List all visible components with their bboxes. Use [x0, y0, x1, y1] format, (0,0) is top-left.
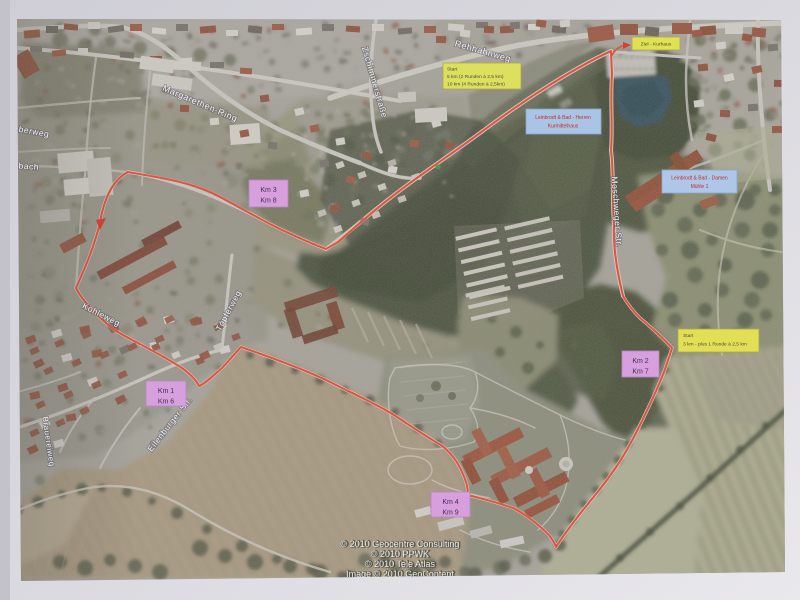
svg-text:10 km (4 Runden à 2,5km): 10 km (4 Runden à 2,5km) [447, 82, 505, 88]
svg-text:Km 8: Km 8 [260, 198, 276, 205]
svg-text:Km 4: Km 4 [442, 499, 458, 506]
svg-text:Km 6: Km 6 [158, 399, 174, 406]
svg-text:Km 9: Km 9 [442, 510, 458, 517]
svg-text:Start: Start [447, 67, 458, 73]
svg-text:Kurmittelhaus: Kurmittelhaus [548, 124, 579, 130]
svg-text:Km 3: Km 3 [260, 187, 276, 194]
svg-text:© 2010 Geocentre Consulting: © 2010 Geocentre Consulting [341, 539, 460, 549]
svg-text:Km 7: Km 7 [632, 369, 648, 376]
svg-text:Km 2: Km 2 [632, 358, 648, 365]
svg-text:© 2010 PPWK: © 2010 PPWK [371, 549, 429, 559]
svg-text:© 2010 Tele Atlas: © 2010 Tele Atlas [365, 559, 436, 569]
svg-text:5 km (2 Runden à 2,5 km): 5 km (2 Runden à 2,5 km) [447, 74, 504, 80]
svg-text:Leinbrodt & Bad - Herren: Leinbrodt & Bad - Herren [535, 115, 591, 121]
svg-text:Leinbrodt & Bad - Damen: Leinbrodt & Bad - Damen [671, 176, 728, 182]
svg-text:Ziel - Kurhaus: Ziel - Kurhaus [641, 42, 672, 48]
svg-text:3 km - plus 1 Runde à 2,5 km: 3 km - plus 1 Runde à 2,5 km [683, 342, 747, 348]
svg-text:Mühle 1: Mühle 1 [691, 184, 709, 190]
svg-text:Start: Start [683, 333, 694, 339]
svg-text:Km 1: Km 1 [158, 388, 174, 395]
